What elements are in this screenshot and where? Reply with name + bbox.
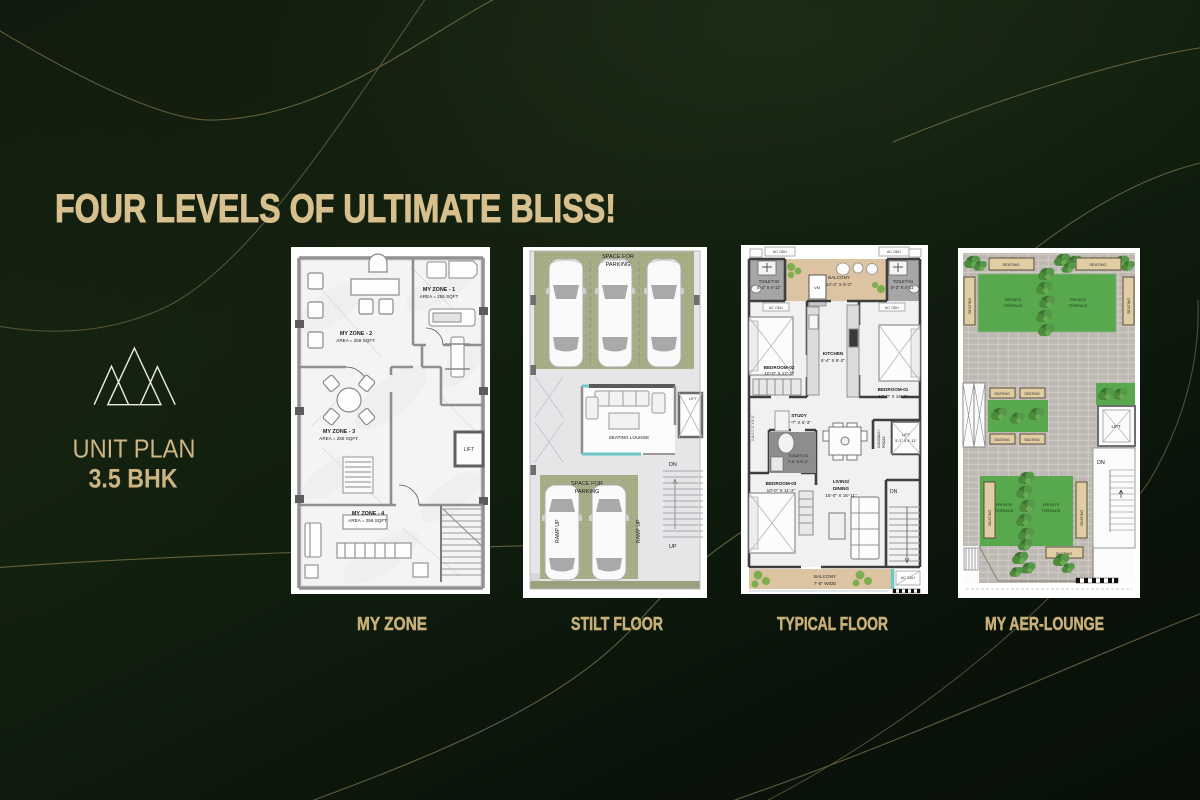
svg-text:MY ZONE: MY ZONE <box>357 614 427 634</box>
svg-text:TERRACE: TERRACE <box>994 508 1013 513</box>
svg-text:TOILET-02: TOILET-02 <box>759 279 780 284</box>
svg-text:10'-0" X 12'-2": 10'-0" X 12'-2" <box>764 371 793 376</box>
svg-text:3.5 BHK: 3.5 BHK <box>89 464 178 494</box>
svg-text:TOILET-01: TOILET-01 <box>893 279 914 284</box>
svg-text:AC ODU: AC ODU <box>887 250 901 254</box>
svg-text:FOUR LEVELS OF ULTIMATE BLISS!: FOUR LEVELS OF ULTIMATE BLISS! <box>55 187 616 231</box>
svg-text:MY ZONE - 3: MY ZONE - 3 <box>323 429 355 435</box>
svg-text:CONSOLE /: CONSOLE / <box>877 429 881 448</box>
svg-text:LIFT: LIFT <box>689 397 697 401</box>
svg-text:MY AER-LOUNGE: MY AER-LOUNGE <box>985 614 1104 634</box>
svg-text:PRIVATE: PRIVATE <box>996 502 1013 507</box>
svg-text:DINING: DINING <box>833 486 850 491</box>
svg-text:SEATING: SEATING <box>1024 392 1040 396</box>
svg-text:16'-0" X 16'-11": 16'-0" X 16'-11" <box>825 493 857 498</box>
svg-text:TOILET-03: TOILET-03 <box>788 453 808 458</box>
svg-text:13'-0" X 16'-2": 13'-0" X 16'-2" <box>878 394 907 399</box>
svg-text:PRIVATE: PRIVATE <box>1070 297 1087 302</box>
svg-text:SEATING: SEATING <box>968 298 972 314</box>
svg-text:STUDY: STUDY <box>791 413 807 418</box>
svg-text:UNIT PLAN: UNIT PLAN <box>73 434 196 464</box>
svg-text:6'-4" X 9'-2": 6'-4" X 9'-2" <box>821 358 845 363</box>
svg-text:DN: DN <box>890 489 898 495</box>
svg-text:D.&.S 2'-0" X 8'-0": D.&.S 2'-0" X 8'-0" <box>751 415 755 441</box>
svg-text:SEATING: SEATING <box>1127 298 1131 314</box>
svg-text:DN: DN <box>1097 460 1105 466</box>
svg-text:KITCHEN: KITCHEN <box>823 351 844 356</box>
svg-text:LIFT: LIFT <box>464 447 474 453</box>
svg-text:SEATING: SEATING <box>994 392 1010 396</box>
svg-text:RAMP UP: RAMP UP <box>636 519 642 543</box>
svg-text:AC ODU: AC ODU <box>769 306 783 310</box>
svg-text:STILT FLOOR: STILT FLOOR <box>571 614 663 634</box>
svg-text:BEDROOM-02: BEDROOM-02 <box>764 365 795 370</box>
svg-text:UP: UP <box>669 544 677 550</box>
svg-text:MY ZONE - 4: MY ZONE - 4 <box>352 511 384 517</box>
svg-text:SEATING: SEATING <box>994 438 1010 442</box>
svg-text:PRIVATE: PRIVATE <box>1043 502 1060 507</box>
svg-text:TYPICAL FLOOR: TYPICAL FLOOR <box>777 614 888 634</box>
svg-text:RAMP UP: RAMP UP <box>555 519 561 543</box>
svg-text:MY ZONE - 1: MY ZONE - 1 <box>423 287 455 293</box>
svg-text:AREA = 255 SQFT: AREA = 255 SQFT <box>420 294 459 299</box>
svg-text:POOJA: POOJA <box>882 436 886 448</box>
svg-text:SEATING LOUNGE: SEATING LOUNGE <box>609 435 650 440</box>
svg-text:SEATING: SEATING <box>988 510 992 526</box>
svg-text:SEATING: SEATING <box>1080 510 1084 526</box>
svg-text:PARKING: PARKING <box>606 262 631 268</box>
svg-text:SEATING: SEATING <box>1002 262 1019 267</box>
svg-text:MY ZONE - 2: MY ZONE - 2 <box>340 331 372 337</box>
svg-text:SEATING: SEATING <box>1024 438 1040 442</box>
svg-text:TERRACE: TERRACE <box>1041 508 1060 513</box>
svg-text:VM: VM <box>814 285 820 290</box>
svg-text:BEDROOM-03: BEDROOM-03 <box>766 481 797 486</box>
svg-text:AREA = 258 SQFT.: AREA = 258 SQFT. <box>319 436 358 441</box>
svg-text:7'-7" X 5'-3": 7'-7" X 5'-3" <box>787 420 811 425</box>
svg-text:TERRACE: TERRACE <box>1003 303 1022 308</box>
svg-text:14'-3" X 5'-2": 14'-3" X 5'-2" <box>826 282 853 287</box>
svg-text:LIFT: LIFT <box>902 433 910 437</box>
svg-text:PRIVATE: PRIVATE <box>1005 297 1022 302</box>
svg-text:7'-9" X 5'-2": 7'-9" X 5'-2" <box>788 459 809 464</box>
svg-text:DN: DN <box>669 462 677 468</box>
svg-text:8'-2" X 4'-11": 8'-2" X 4'-11" <box>891 285 915 290</box>
svg-text:SPACE FOR: SPACE FOR <box>571 481 603 487</box>
svg-text:SPACE FOR: SPACE FOR <box>602 254 634 260</box>
svg-text:AREA = 258 SQFT.: AREA = 258 SQFT. <box>336 338 375 343</box>
svg-text:AC ODU: AC ODU <box>773 250 787 254</box>
svg-text:5'-1" X 4'-11": 5'-1" X 4'-11" <box>895 439 917 443</box>
svg-text:6'-2" X 4'-11": 6'-2" X 4'-11" <box>757 285 781 290</box>
svg-text:AC ODU: AC ODU <box>885 306 899 310</box>
svg-text:SEATING: SEATING <box>1089 262 1106 267</box>
svg-text:10'-0" X 11'-2": 10'-0" X 11'-2" <box>767 488 796 493</box>
svg-text:LIFT: LIFT <box>1111 424 1120 429</box>
svg-text:LIVING/: LIVING/ <box>833 479 850 484</box>
svg-text:BALCONY: BALCONY <box>814 574 836 579</box>
svg-text:AREA = 258 SQFT.: AREA = 258 SQFT. <box>348 518 387 523</box>
svg-text:7'-5" WIDE: 7'-5" WIDE <box>814 581 836 586</box>
svg-text:BALCONY: BALCONY <box>828 275 850 280</box>
svg-text:PARKING: PARKING <box>575 489 600 495</box>
svg-text:TERRACE: TERRACE <box>1068 303 1087 308</box>
svg-text:BEDROOM-01: BEDROOM-01 <box>878 387 909 392</box>
